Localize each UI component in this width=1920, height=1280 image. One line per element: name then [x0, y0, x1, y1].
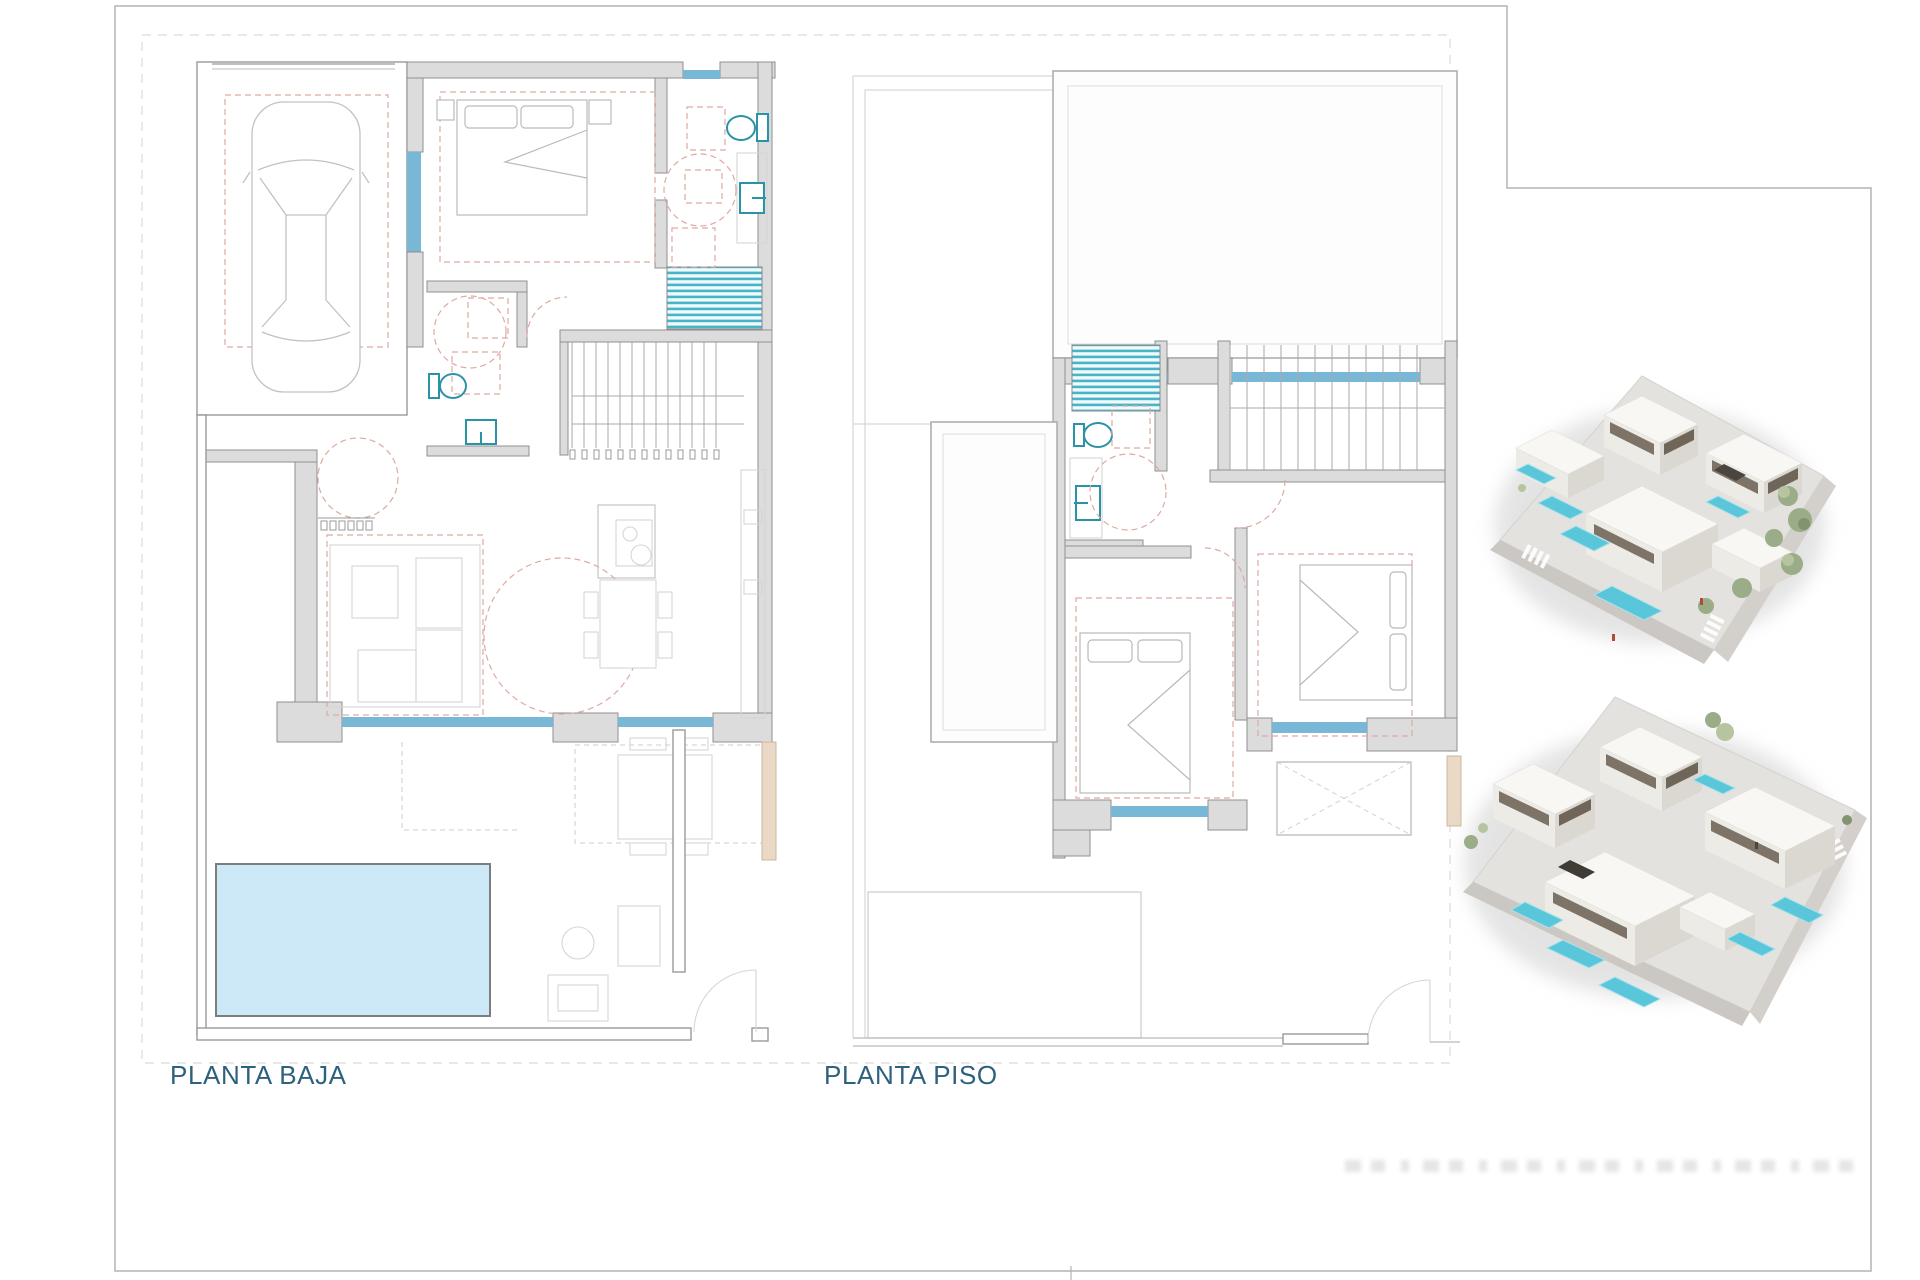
toilet-upper	[1074, 423, 1112, 447]
neighbor-wall-beige-upper	[1447, 756, 1461, 826]
upper-floor-plan	[853, 71, 1461, 1046]
outdoor-dining	[618, 738, 712, 855]
bedroom-2-upper	[1258, 554, 1412, 736]
stairs-ground	[560, 342, 744, 459]
bathroom-upper	[1070, 345, 1166, 538]
window-mullions	[318, 518, 375, 530]
ground-floor-plan	[197, 62, 776, 1041]
bedroom-window	[407, 152, 421, 252]
stair-ticks	[570, 450, 719, 459]
ground-floor-label: PLANTA BAJA	[170, 1060, 347, 1091]
washbasin-upper	[1074, 486, 1100, 520]
bedroom2-window	[1272, 722, 1367, 733]
toilet-wc	[429, 374, 466, 398]
double-bed	[437, 100, 611, 215]
toilet	[727, 114, 768, 141]
bedroom1-window	[1111, 806, 1208, 817]
sofa-set	[330, 545, 480, 707]
gate-arc	[694, 970, 756, 1032]
garage	[197, 62, 407, 415]
car-top-view	[243, 102, 369, 392]
gate-arc-upper	[1368, 980, 1430, 1042]
side-terrace	[931, 422, 1057, 742]
washbasin	[740, 183, 766, 213]
aerial-render-bottom	[1463, 697, 1867, 1026]
neighbor-wall-beige	[762, 742, 776, 860]
plan-sheet: { "plans": { "ground": { "label": "PLANT…	[0, 0, 1920, 1280]
bed-2	[1300, 565, 1412, 700]
render-people-bottom	[1755, 842, 1758, 849]
bedroom-ground	[437, 92, 655, 262]
shower-upper	[1072, 345, 1160, 411]
living-window	[342, 717, 553, 727]
kitchen-island	[598, 505, 655, 578]
shower	[667, 267, 762, 329]
roof-terrace	[1053, 71, 1457, 358]
bathroom-window	[683, 70, 720, 79]
living-window-2	[618, 717, 713, 727]
swimming-pool	[216, 864, 490, 1016]
dining-table	[584, 580, 672, 668]
aerial-render-top	[1490, 376, 1836, 664]
upper-window-2	[1232, 372, 1420, 382]
bathroom-ground	[664, 107, 768, 329]
upper-floor-label: PLANTA PISO	[824, 1060, 998, 1091]
faint-watermark-text	[1345, 1160, 1865, 1172]
void-skylight	[1277, 762, 1411, 835]
washbasin-wc	[466, 420, 496, 444]
wc-ground	[429, 296, 567, 444]
bedroom-1-upper	[1076, 598, 1233, 798]
bed-1	[1080, 633, 1190, 793]
pool-furniture	[548, 906, 660, 1021]
kitchen-living	[318, 438, 765, 718]
